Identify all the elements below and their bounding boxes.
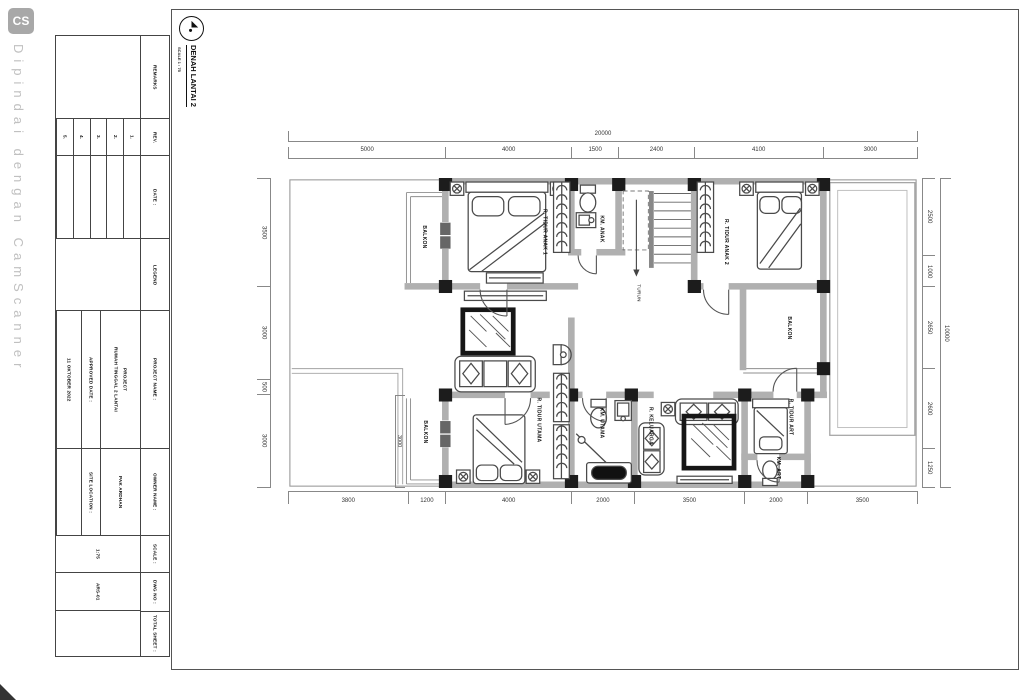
scanned-floorplan-page: { "watermark": { "badge": "CS", "caption… [0,0,1028,700]
drawing-title-header: DENAH LANTAI 2 SCALE 1 : 75 [177,16,211,176]
dimension-overall-right: 10000 [940,178,951,488]
dimension-segment: 1250 [923,448,935,487]
dimension-segment: 2000 [744,492,807,504]
title-block-labels: REMARKS REV. DATE : LEGEND PROJECT NAME … [140,36,169,656]
dimension-segment: 4000 [445,492,571,504]
project-line1: PROJECT [121,347,130,412]
project-line2: RUMAH TINGGAL 2 LANTAI [112,347,121,412]
room-label: R. TIDUR ANAK 2 [723,219,729,265]
rev-column-5: 5. [56,119,73,238]
room-label: KM. UTAMA [598,407,604,438]
site-location-value-cell [56,449,81,535]
dimension-row-top: 500040001500240041003000 [288,147,918,159]
drawing-title: DENAH LANTAI 2 [186,45,198,107]
dimension-segment: 3500 [634,492,744,504]
dimension-inner-balcony: 3000 [395,395,405,488]
dimension-segment: 5000 [288,147,445,158]
room-label: R. TIDUR UTAMA [535,397,541,442]
roof-outline-right [830,183,915,436]
owner-name-label: OWNER NAME : [141,449,169,536]
title-block-content: 1. 2. 3. 4. 5. PROJECT RUMAH TINGGAL 2 L… [56,36,140,656]
total-sheet-label: TOTAL SHEET : [141,612,169,656]
room-label: KM. ART [775,456,781,479]
remarks-label: REMARKS [141,36,169,119]
scale-label: SCALE : [141,536,169,574]
dimension-segment: 4100 [694,147,823,158]
dimension-column-right: 25001000265026001250 [922,178,935,488]
rev-number: 2. [107,119,123,156]
scale-value-cell: 1:75 [56,536,140,573]
room-label: R. TIDUR ART [787,398,793,435]
project-value-cell: PROJECT RUMAH TINGGAL 2 LANTAI [100,311,140,448]
rev-column-3: 3. [90,119,107,238]
dimension-segment: 1200 [408,492,446,504]
project-cell: PROJECT RUMAH TINGGAL 2 LANTAI APPROVED … [56,311,140,449]
approved-date-value-cell: 11 OKTOBER 2022 [56,311,81,448]
room-label: R. TIDUR ANAK 1 [542,209,548,255]
dimension-segment: 3000 [823,147,917,158]
legend-cell [56,239,140,311]
dimension-segment: 2000 [571,492,634,504]
dimension-segment: 2650 [923,286,935,368]
room-label: BALKON [786,317,792,340]
dimension-column-left: 350030005003000 [257,178,271,488]
room-label: BALKON [421,225,427,248]
dwg-no-label: DWG NO : [141,573,169,612]
dimension-segment: 3500 [257,178,270,286]
owner-cell: PAK ARDHAN SITE LOCATION : [56,449,140,536]
north-arrow-icon [179,16,204,41]
room-label: R. KELUARGA [647,407,653,445]
dimension-segment: 1500 [571,147,618,158]
camscanner-badge-icon: CS [8,8,34,34]
dimension-segment: 1000 [923,255,935,286]
dimension-segment: 3000 [257,286,270,379]
date-label: DATE : [141,156,169,239]
dimension-segment: 3000 [257,394,270,487]
rev-number: 5. [57,119,73,156]
dimension-row-bottom: 3800120040002000350020003500 [288,491,918,504]
site-location-label-cell: SITE LOCATION : [81,449,100,535]
legend-label: LEGEND [141,239,169,311]
rev-column-1: 1. [123,119,140,238]
revision-table: 1. 2. 3. 4. 5. [56,119,140,239]
room-label: TURUN [637,284,642,302]
rev-number: 1. [124,119,140,156]
drawing-scale-note: SCALE 1 : 75 [177,47,182,72]
dimension-overall-top: 20000 [288,131,918,142]
project-name-label: PROJECT NAME : [141,311,169,448]
dimension-segment: 2600 [923,368,935,448]
page-corner-fold [0,684,16,700]
room-label: KM. ANAK [598,216,604,243]
owner-value-cell: PAK ARDHAN [100,449,140,535]
rev-column-4: 4. [73,119,90,238]
rev-number: 3. [91,119,107,156]
camscanner-watermark-text: Dipindai dengan CamScanner [11,44,26,373]
room-label: BALKON [422,421,428,444]
total-sheet-value-cell [56,611,140,656]
rev-number: 4. [74,119,90,156]
dimension-segment: 2400 [618,147,693,158]
staircase [623,191,691,277]
rev-label: REV. [141,119,169,157]
remarks-cell [56,36,140,119]
approved-date-label-cell: APPROVED DATE : [81,311,100,448]
dimension-segment: 4000 [445,147,571,158]
dimension-segment: 500 [257,379,270,394]
dimension-segment: 2500 [923,178,935,255]
dimension-segment: 3800 [288,492,408,504]
dimension-segment: 3500 [807,492,917,504]
rev-column-2: 2. [106,119,123,238]
title-block: 1. 2. 3. 4. 5. PROJECT RUMAH TINGGAL 2 L… [55,35,170,657]
roof-line-bottom-left [292,369,403,485]
dwg-no-value-cell: ARS-01 [56,573,140,611]
